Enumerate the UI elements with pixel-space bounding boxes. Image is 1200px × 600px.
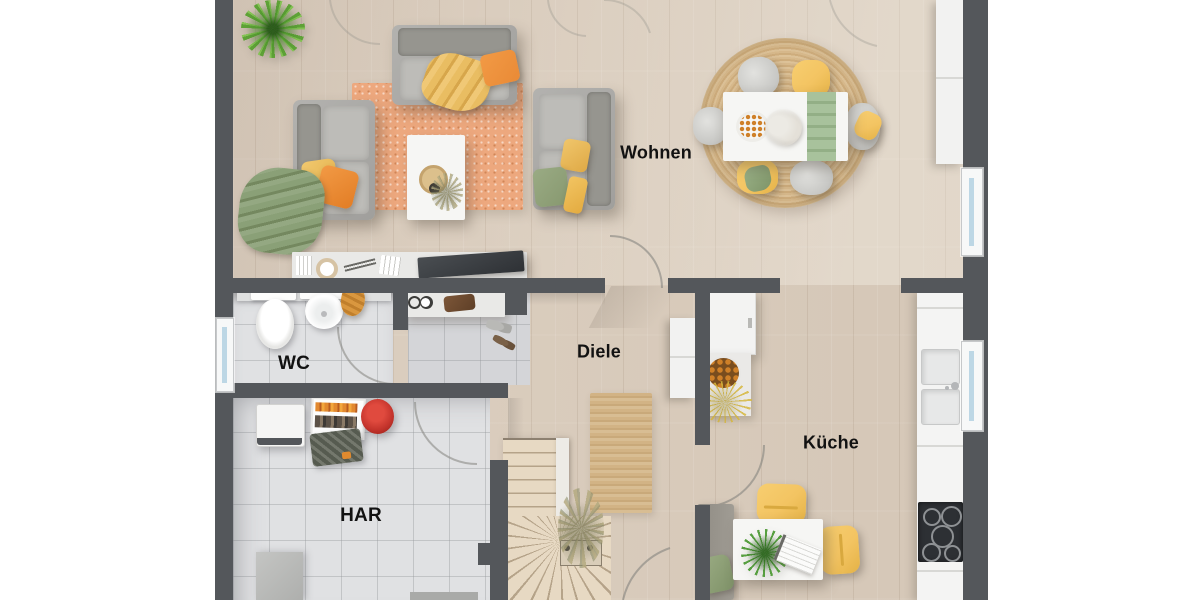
pens (344, 258, 377, 272)
burner (922, 543, 941, 562)
room-label-wohnen: Wohnen (620, 143, 692, 164)
file-stack (379, 255, 401, 277)
eyeglasses (408, 296, 421, 309)
washer-front-seam (257, 438, 302, 445)
tall-cabinet (936, 0, 963, 164)
vacuum-cleaner (361, 399, 394, 434)
dining-table (723, 92, 848, 161)
burner (923, 508, 941, 526)
counter-seam (917, 445, 963, 447)
sink-basin (921, 349, 960, 385)
books (296, 256, 312, 275)
wall-kitchen-west-upper (695, 288, 710, 445)
window-glass (969, 178, 974, 246)
wall-living-hall-west (233, 278, 605, 293)
dining-chair (790, 160, 833, 195)
coffee-table (407, 135, 465, 220)
wall-utility-notch (478, 543, 494, 565)
counter-seam (917, 307, 963, 309)
kitchen-sink (921, 349, 961, 425)
cabinet-seam (936, 77, 963, 79)
sofa-cushion (323, 106, 369, 160)
faucet (951, 382, 959, 390)
cabinet-seam (670, 356, 695, 358)
flatscreen-tv (417, 250, 524, 278)
wall-left (215, 0, 233, 600)
counter-seam (917, 570, 963, 572)
handbag (443, 293, 476, 312)
storage-strip (410, 592, 478, 600)
potted-plant (241, 0, 305, 58)
tool-row-orange (315, 402, 357, 412)
burner (941, 506, 962, 527)
wall-kitchen-north (901, 278, 963, 293)
washbasin (305, 293, 343, 329)
room-label-wc: WC (278, 353, 310, 375)
wall-utility-east (490, 460, 508, 600)
hall-wardrobe (402, 290, 505, 317)
washing-machine (256, 404, 305, 447)
wall-stub-hall (505, 288, 527, 315)
candle (316, 258, 338, 280)
hallway-runner-rug (590, 393, 652, 513)
cabinet-handle (748, 318, 752, 328)
window-glass (969, 351, 974, 421)
tv-sideboard (292, 252, 527, 279)
table-runner-green (807, 92, 836, 161)
room-label-kueche: Küche (803, 433, 859, 454)
toilet-bowl (256, 299, 294, 349)
doormat (309, 428, 364, 467)
napkin-green (743, 164, 774, 194)
cooktop (918, 502, 963, 562)
wall-right (963, 0, 988, 600)
kitchen-chair (756, 483, 806, 524)
wc-window (216, 318, 234, 392)
floor-plan-canvas: Wohnen Diele WC HAR Küche (0, 0, 1200, 600)
flower-decor (765, 109, 802, 146)
wall-kitchen-west-lower (695, 505, 710, 600)
storage-box (256, 552, 303, 600)
window-glass (222, 327, 227, 383)
kitchen-chair (818, 525, 860, 576)
sofa-backrest (587, 92, 611, 206)
dining-chair-yellow (737, 159, 778, 194)
fridge-cabinet (702, 291, 756, 355)
chair-seam (839, 534, 844, 566)
drain (321, 311, 327, 317)
burner (944, 545, 961, 562)
kitchen-table (733, 519, 823, 580)
room-label-diele: Diele (577, 342, 621, 363)
wall-living-hall-east (668, 278, 780, 293)
pampas-plant (558, 488, 604, 568)
dried-plant (431, 173, 463, 211)
kitchen-window (961, 341, 983, 431)
wall-wc-utility (215, 383, 508, 398)
mat-accent (342, 451, 352, 459)
wall-wc-east (393, 288, 408, 330)
chair-seam (764, 505, 798, 509)
sink-basin (921, 389, 960, 425)
hall-tall-cabinet (670, 318, 695, 398)
room-label-har: HAR (340, 505, 382, 527)
tool-row-dark (315, 415, 357, 428)
dining-window (961, 168, 983, 256)
